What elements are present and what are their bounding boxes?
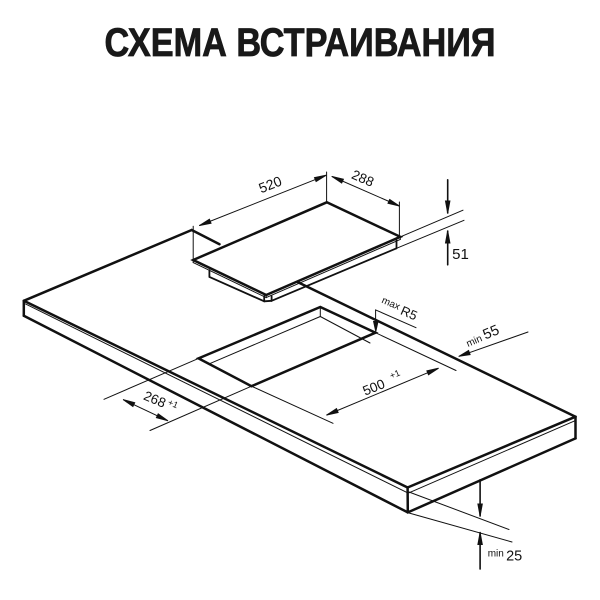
svg-text:51: 51 xyxy=(452,246,469,263)
svg-text:+1: +1 xyxy=(388,368,401,381)
svg-text:25: 25 xyxy=(506,549,522,565)
svg-text:500: 500 xyxy=(360,376,387,398)
svg-text:+1: +1 xyxy=(166,397,179,410)
svg-text:520: 520 xyxy=(256,173,284,197)
svg-text:min 55: min 55 xyxy=(463,322,502,350)
svg-text:268: 268 xyxy=(141,388,168,411)
svg-text:min: min xyxy=(488,548,504,559)
svg-text:max R5: max R5 xyxy=(379,294,420,323)
